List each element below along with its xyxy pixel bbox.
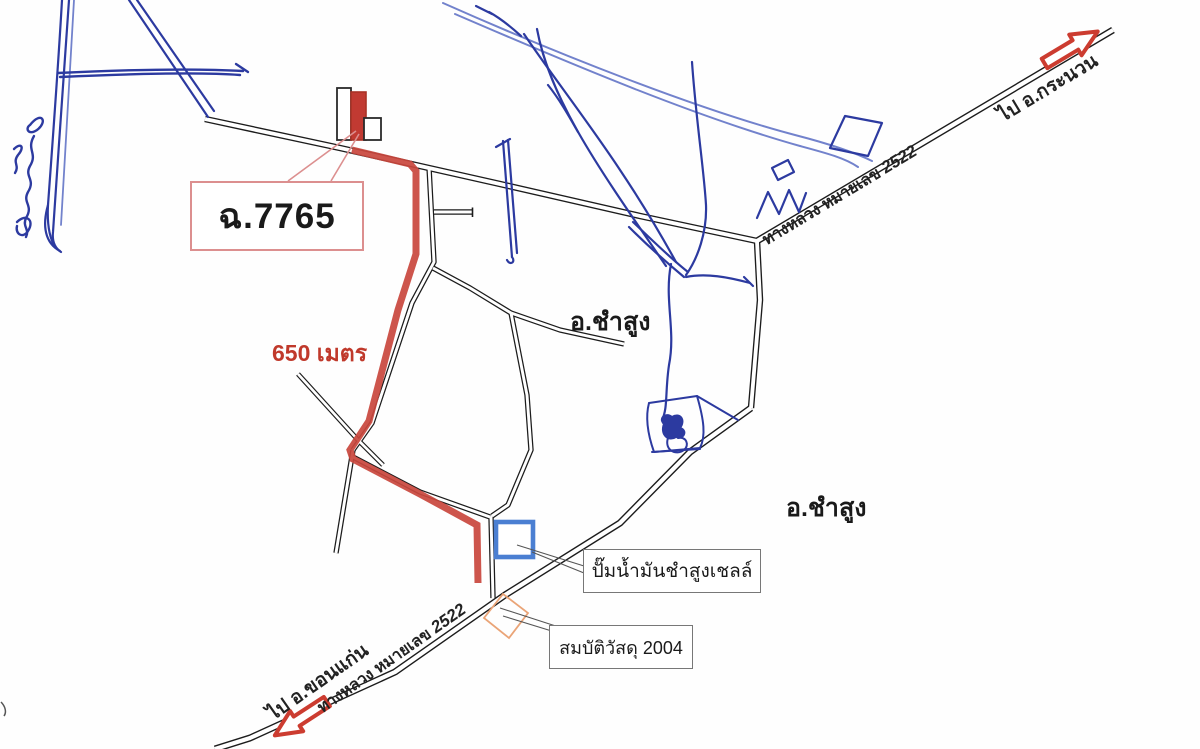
district-label-1: อ.ชำสูง bbox=[570, 302, 650, 342]
parcel-label-box: ฉ.7765 bbox=[190, 181, 364, 251]
distance-label: 650 เมตร bbox=[272, 336, 367, 372]
route-650m-red-line bbox=[350, 150, 478, 583]
ink-right-steep bbox=[686, 62, 706, 275]
building-white-small bbox=[364, 118, 381, 140]
ink-left-diagonal bbox=[129, 0, 208, 117]
parcel-label: ฉ.7765 bbox=[218, 189, 335, 244]
material-shop-label-box: สมบัติวัสดุ 2004 bbox=[549, 625, 693, 669]
ink-long-diagonal bbox=[443, 3, 872, 161]
stray-mark bbox=[1, 702, 5, 716]
handwritten-note-scribble bbox=[14, 118, 43, 237]
ink-left-horizontal bbox=[58, 70, 243, 73]
material-shop-marker bbox=[484, 594, 528, 638]
gas-station-label: ปั๊มน้ำมันชำสูงเชลล์ bbox=[592, 556, 753, 586]
sketch-map-page: ฉ.7765 650 เมตร อ.ชำสูง อ.ชำสูง ปั๊มน้ำม… bbox=[0, 0, 1200, 749]
gas-station-marker bbox=[496, 522, 533, 557]
street-vertical bbox=[353, 167, 434, 450]
gas-station-label-box: ปั๊มน้ำมันชำสูงเชลล์ bbox=[583, 549, 761, 593]
ink-parallelogram bbox=[830, 116, 882, 156]
district-label-2: อ.ชำสูง bbox=[786, 488, 866, 528]
building-white-tall bbox=[337, 88, 351, 140]
material-shop-label: สมบัติวัสดุ 2004 bbox=[559, 633, 683, 662]
street-east-down bbox=[492, 313, 531, 516]
parcel-buildings bbox=[337, 88, 381, 140]
